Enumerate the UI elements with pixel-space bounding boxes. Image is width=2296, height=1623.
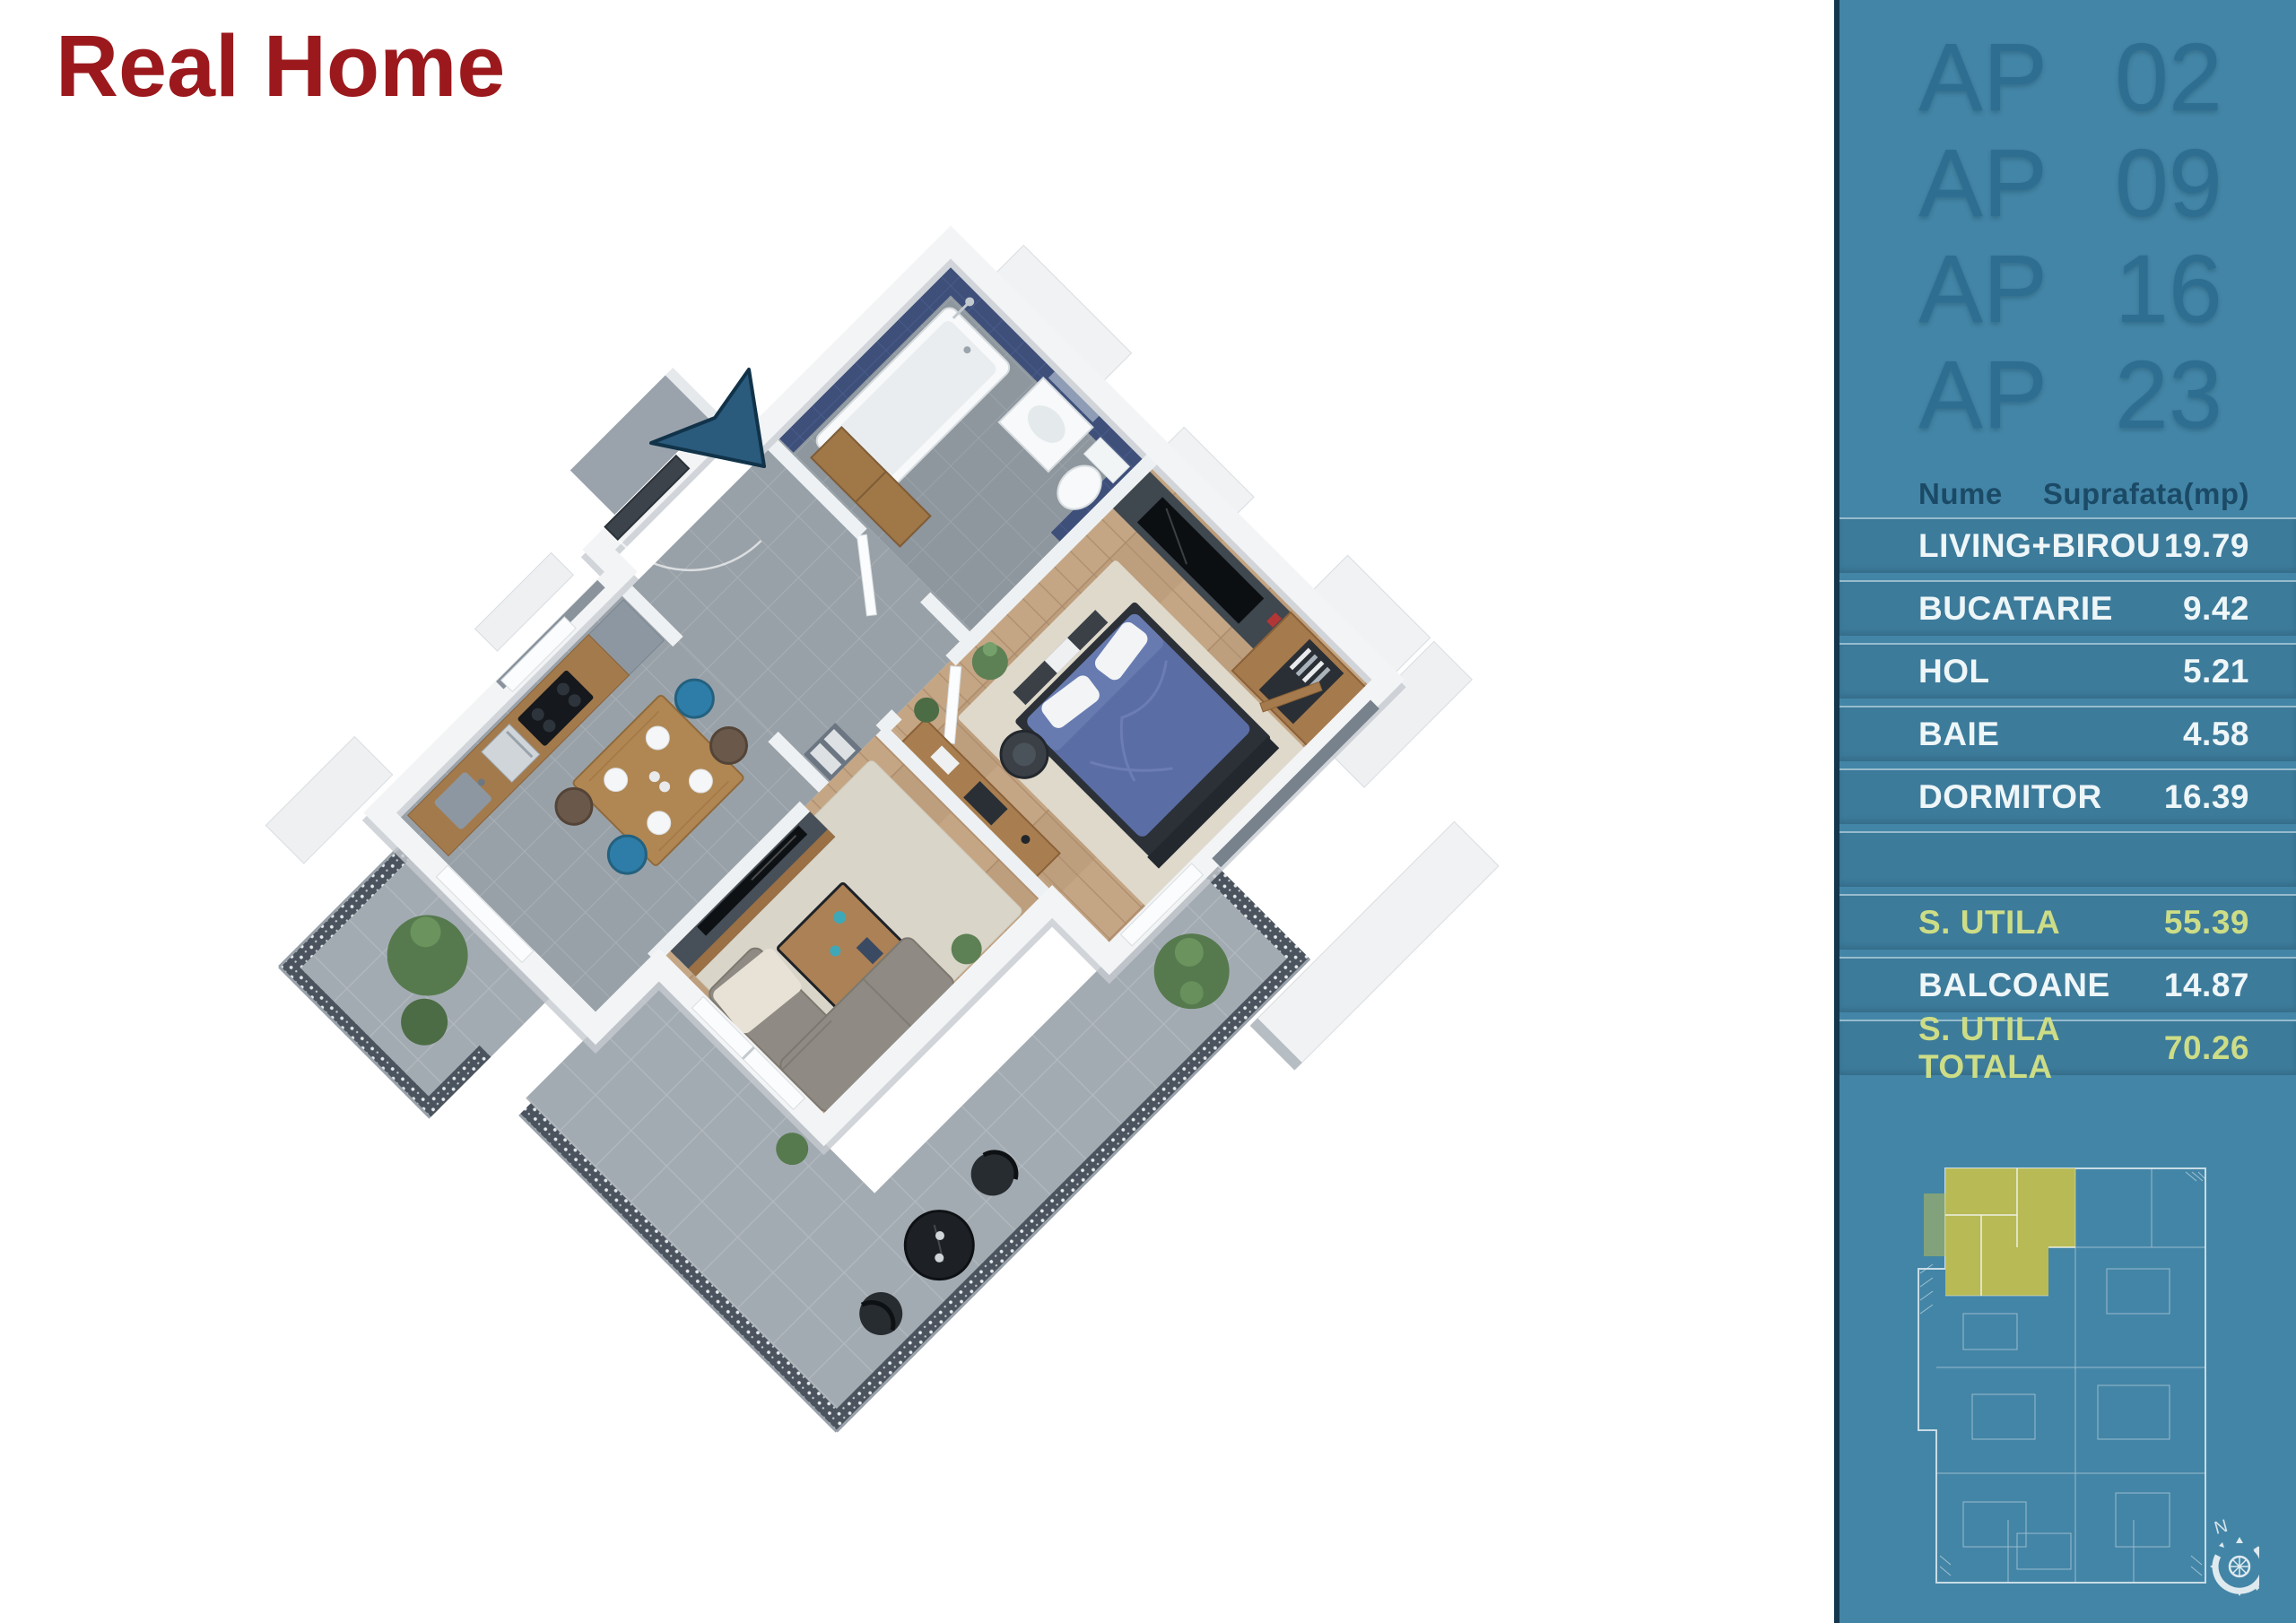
floorplan-render <box>0 0 1834 1623</box>
table-header: Nume Suprafata(mp) <box>1839 473 2296 515</box>
table-row-total: S. UTILA TOTALA 70.26 <box>1839 1020 2296 1075</box>
table-row-empty <box>1839 831 2296 887</box>
apartment-code[interactable]: AP 23 <box>1839 341 2296 447</box>
areas-table: LIVING+BIROU 19.79 BUCATARIE 9.42 HOL 5.… <box>1839 517 2296 1082</box>
info-sidebar: AP 02 AP 09 AP 16 AP 23 Nume Suprafata(m… <box>1834 0 2296 1623</box>
table-row-total: BALCOANE 14.87 <box>1839 957 2296 1012</box>
table-row-total: S. UTILA 55.39 <box>1839 894 2296 950</box>
table-row: LIVING+BIROU 19.79 <box>1839 517 2296 573</box>
table-row: DORMITOR 16.39 <box>1839 768 2296 824</box>
apartment-code[interactable]: AP 02 <box>1839 23 2296 129</box>
compass-north-label: N <box>2213 1516 2231 1539</box>
highlighted-unit <box>1945 1168 2075 1296</box>
compass-rose: N <box>2210 1516 2259 1596</box>
column-name: Nume <box>1918 477 2003 511</box>
table-row: HOL 5.21 <box>1839 643 2296 699</box>
table-row: BAIE 4.58 <box>1839 706 2296 761</box>
apartment-code[interactable]: AP 09 <box>1839 129 2296 235</box>
building-blueprint: N <box>1883 1161 2259 1605</box>
page: Real Home <box>0 0 2296 1623</box>
apartment-code-list: AP 02 AP 09 AP 16 AP 23 <box>1839 23 2296 447</box>
column-area: Suprafata(mp) <box>2043 477 2249 511</box>
apartment-code[interactable]: AP 16 <box>1839 235 2296 341</box>
table-row: BUCATARIE 9.42 <box>1839 580 2296 636</box>
